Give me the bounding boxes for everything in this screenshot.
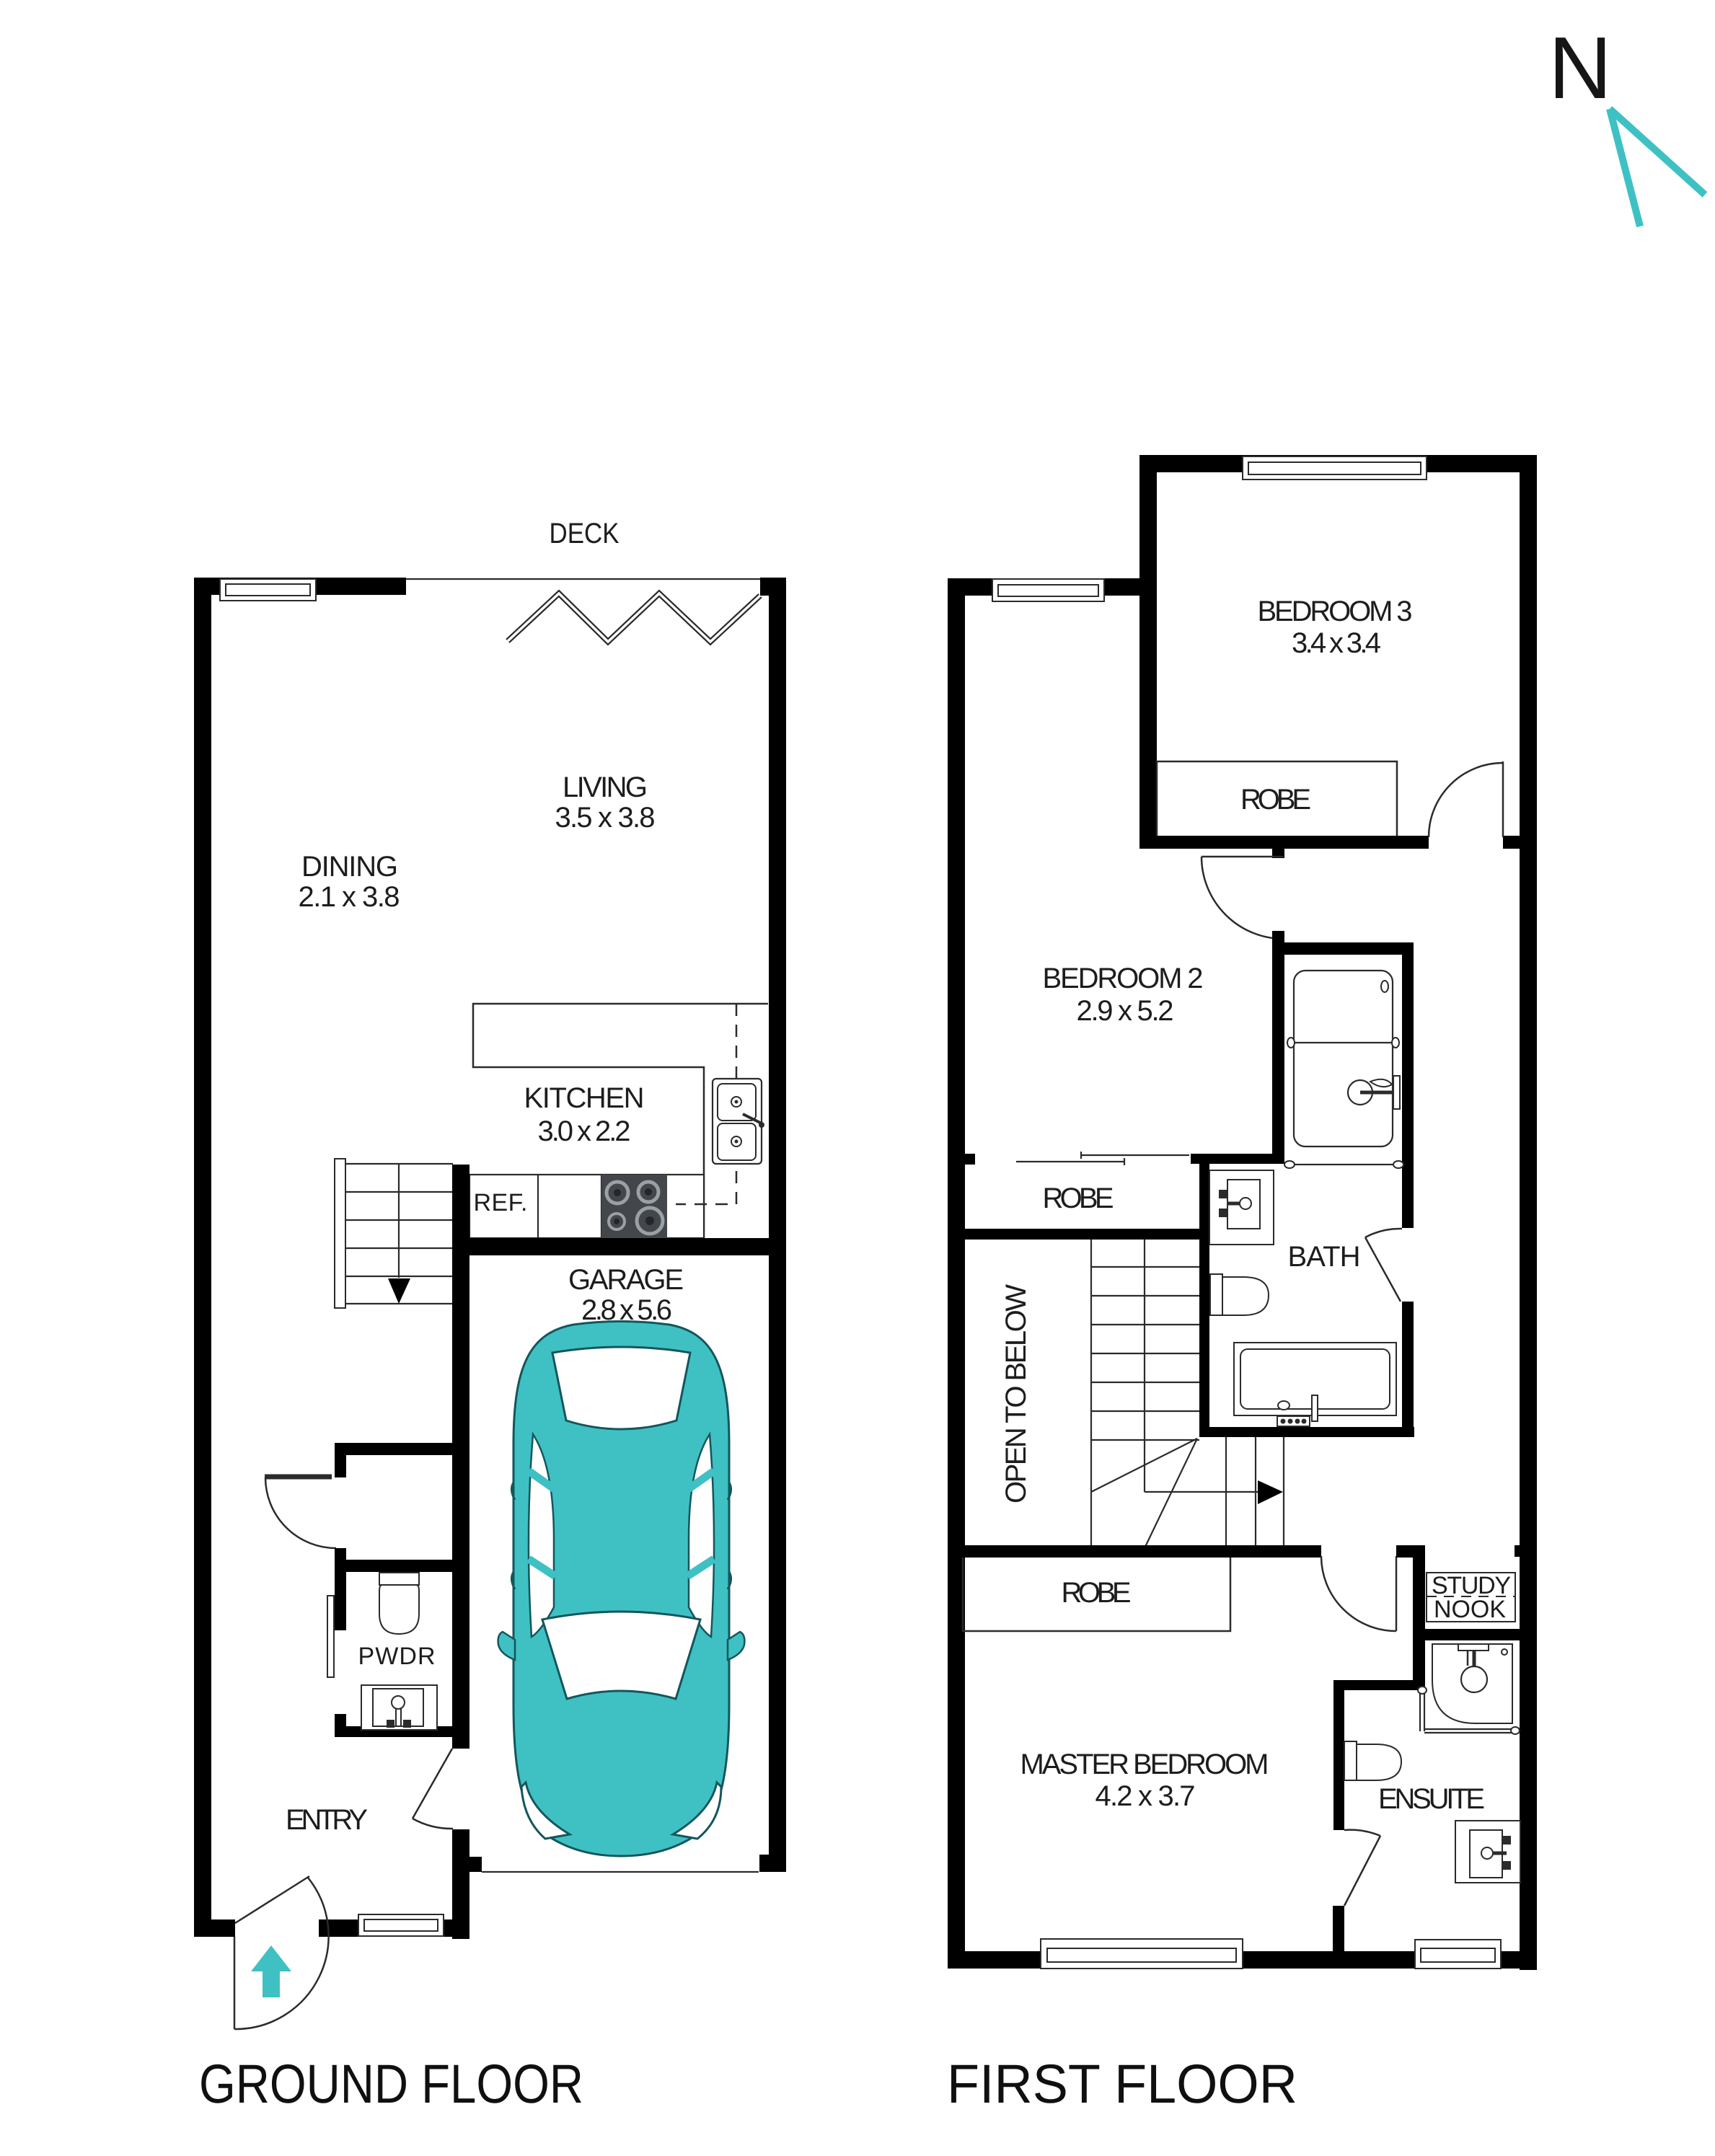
svg-text:GROUND FLOOR: GROUND FLOOR [199,2054,583,2115]
svg-text:NOOK: NOOK [1434,1596,1506,1623]
svg-text:MASTER BEDROOM: MASTER BEDROOM [1020,1749,1269,1780]
svg-text:OPEN TO BELOW: OPEN TO BELOW [1000,1284,1032,1503]
svg-text:DECK: DECK [550,518,620,549]
svg-text:GARAGE: GARAGE [568,1264,684,1296]
svg-text:REF.: REF. [474,1189,528,1216]
svg-text:KITCHEN: KITCHEN [524,1082,645,1114]
svg-text:LIVING: LIVING [563,772,648,803]
svg-text:PWDR: PWDR [358,1643,436,1670]
svg-text:ROBE: ROBE [1240,784,1311,816]
svg-text:3.5 x 3.8: 3.5 x 3.8 [555,802,656,834]
svg-text:ENTRY: ENTRY [286,1804,368,1836]
svg-text:3.4 x 3.4: 3.4 x 3.4 [1292,627,1381,659]
svg-text:4.2 x 3.7: 4.2 x 3.7 [1095,1780,1196,1812]
svg-text:2.1 x 3.8: 2.1 x 3.8 [299,881,400,913]
svg-text:2.9 x 5.2: 2.9 x 5.2 [1077,995,1174,1027]
svg-text:ENSUITE: ENSUITE [1378,1783,1485,1815]
svg-text:ROBE: ROBE [1043,1183,1114,1214]
svg-text:DINING: DINING [301,851,398,883]
svg-text:BEDROOM 3: BEDROOM 3 [1258,596,1413,627]
svg-text:N: N [1548,19,1612,117]
svg-text:3.0 x 2.2: 3.0 x 2.2 [538,1115,631,1147]
svg-text:ROBE: ROBE [1062,1577,1132,1609]
svg-text:FIRST FLOOR: FIRST FLOOR [947,2054,1297,2115]
svg-text:BEDROOM 2: BEDROOM 2 [1043,963,1204,994]
svg-text:BATH: BATH [1288,1241,1361,1273]
